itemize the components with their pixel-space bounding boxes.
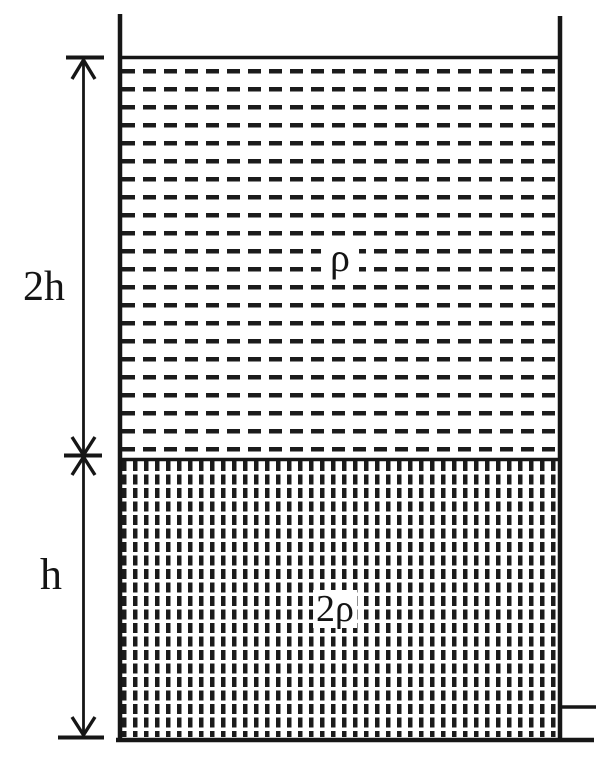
dimension-arrow-2h <box>64 58 104 456</box>
dimension-arrow-h <box>58 457 104 738</box>
density-label-2rho: 2ρ <box>313 590 357 628</box>
diagram-linework <box>0 0 611 775</box>
physics-diagram-two-layer-liquid: 2h h ρ 2ρ <box>0 0 611 775</box>
dimension-label-2h: 2h <box>23 266 65 308</box>
density-label-rho: ρ <box>321 237 359 279</box>
dimension-label-h: h <box>40 553 62 597</box>
